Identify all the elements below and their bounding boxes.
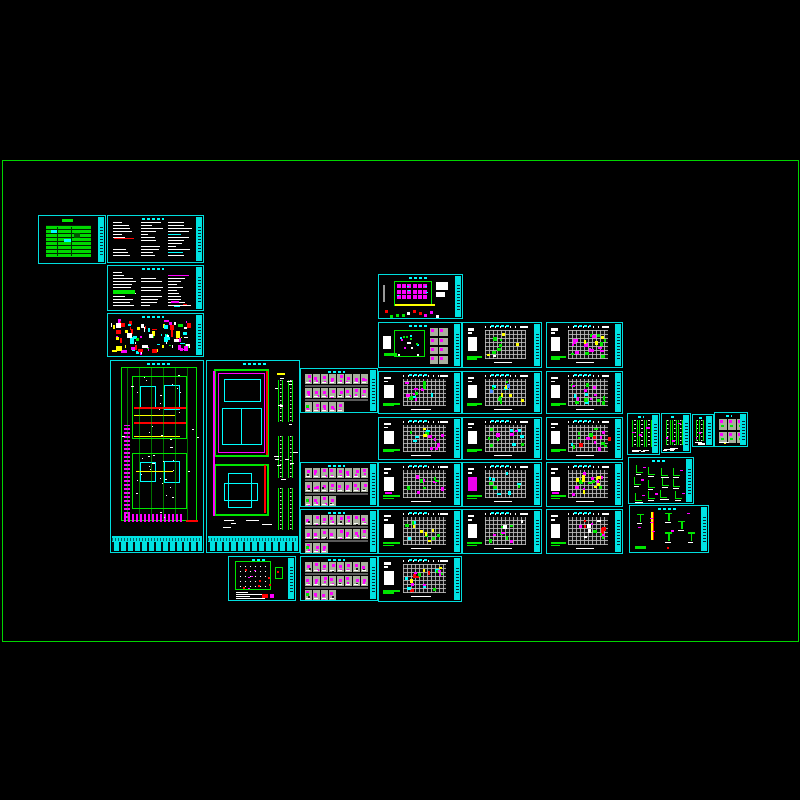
drawing-speck <box>136 338 138 341</box>
sheet-title-marks <box>142 218 164 220</box>
note-bar <box>384 423 391 425</box>
drawing-speck <box>116 330 122 334</box>
sheet-title-marks <box>328 371 345 373</box>
sheet-framing-plan-s2[interactable] <box>546 371 623 414</box>
note-text-line <box>141 302 157 303</box>
sheet-title-marks <box>671 416 676 418</box>
sheet-title-marks <box>726 415 732 417</box>
cell-rebar-mark <box>363 469 366 472</box>
sheet-title-marks <box>243 363 266 365</box>
detail-cell <box>361 529 368 539</box>
detail-cell <box>337 374 344 384</box>
title-block-framing-plan-m6 <box>454 511 460 552</box>
cover-table <box>46 225 91 258</box>
cell-rebar-mark <box>355 378 358 381</box>
cell-label <box>330 382 334 383</box>
cell-rebar-mark <box>322 594 325 597</box>
drawing-speck <box>397 295 399 296</box>
cell-rebar-mark <box>440 348 443 351</box>
dim-mark <box>131 386 134 387</box>
detail-glyph <box>660 490 667 498</box>
stair-ladder <box>632 420 638 447</box>
side-detail <box>275 567 283 578</box>
drawing-speck <box>184 327 188 329</box>
title-block-beam-details-d <box>370 558 376 599</box>
note-text-line <box>168 281 181 282</box>
magenta-dash <box>672 440 675 442</box>
plan-accent <box>423 428 426 430</box>
sheet-framing-plan-m6[interactable] <box>378 509 462 554</box>
magenta-dash <box>680 470 683 472</box>
cell-rebar-mark <box>440 357 443 360</box>
note-text-line <box>168 234 181 235</box>
detail-cell <box>329 482 336 492</box>
detail-cell <box>353 576 360 586</box>
plan-accent <box>416 475 419 479</box>
unit-outline-crenellated <box>224 379 261 402</box>
cell-label <box>306 537 310 538</box>
plan-accent <box>490 444 492 447</box>
plan-accent <box>501 393 503 397</box>
plan-accent <box>415 392 418 395</box>
detail-cell <box>353 388 360 398</box>
cover-title-bar <box>62 219 73 222</box>
sheet-framing-plan-m7[interactable] <box>378 556 462 602</box>
bottom-detail <box>424 314 427 317</box>
plan-accent <box>492 478 495 480</box>
sheet-content-beam-details-c <box>302 511 371 554</box>
drawing-speck <box>149 334 154 338</box>
plan-accent <box>497 348 500 351</box>
plan-accent <box>593 436 596 439</box>
note-text-line <box>141 240 156 241</box>
magenta-dash <box>632 432 635 434</box>
cell-label <box>338 584 342 585</box>
note-bar <box>602 513 609 515</box>
title-block-joint-details <box>740 414 746 445</box>
note-block <box>383 336 391 348</box>
drawing-speck <box>125 330 128 333</box>
tee-detail <box>640 514 642 522</box>
drawing-speck <box>169 345 171 346</box>
detail-cell <box>353 529 360 539</box>
cell-label <box>322 598 326 599</box>
sheet-plan-with-detail-cells[interactable] <box>378 322 462 368</box>
dim-text <box>293 452 298 453</box>
plan-accent <box>594 394 598 396</box>
cell-label <box>322 504 326 505</box>
detail-cell <box>337 468 344 478</box>
sheet-content-general-details-sheet <box>109 315 197 357</box>
detail-cell <box>305 529 312 539</box>
detail-cell <box>337 562 344 572</box>
detail-red <box>262 594 268 597</box>
sheet-misc-small-details[interactable] <box>692 414 714 447</box>
detail-cell <box>728 432 736 443</box>
sheet-section-details[interactable] <box>628 457 694 504</box>
plan-accent <box>439 567 441 569</box>
sheet-framing-plan-r2[interactable] <box>462 371 542 414</box>
title-block-plan-with-detail-cells <box>454 324 460 366</box>
cell-rebar-mark <box>323 469 326 472</box>
detail-cell <box>361 515 368 525</box>
cell-label <box>322 476 326 477</box>
title-block-framing-plan-r3 <box>534 419 540 458</box>
title-block-framing-plan-r2 <box>534 373 540 412</box>
column-dot-grid <box>238 564 269 586</box>
sheet-content-framing-plan-s5 <box>548 511 616 554</box>
note-bar <box>551 381 555 383</box>
sheet-notes-sheet-2[interactable] <box>107 265 204 311</box>
drawing-speck <box>174 322 176 326</box>
sheet-framing-plan-r3[interactable] <box>462 417 542 460</box>
plan-accent <box>582 475 585 478</box>
detail-glyph <box>673 468 680 476</box>
plan-accent <box>489 477 491 480</box>
title-block-misc-small-details <box>706 416 712 445</box>
note-line <box>236 598 265 599</box>
note-text-line <box>141 299 158 300</box>
dim-mark <box>165 479 168 480</box>
sheet-foundation-grid-plan[interactable] <box>228 556 296 601</box>
sheet-content-framing-plan-r5 <box>464 511 535 554</box>
drawing-speck <box>178 345 181 350</box>
cell-rebar-mark <box>363 390 366 393</box>
plan-accent <box>499 344 503 347</box>
drawing-speck <box>408 290 410 291</box>
note-block <box>551 524 560 538</box>
plan-accent <box>576 478 579 481</box>
cell-rebar-mark <box>346 577 349 580</box>
drawing-speck <box>407 286 409 287</box>
cell-rebar-mark <box>306 579 309 582</box>
title-block-framing-plan-m3 <box>454 373 460 412</box>
column-dot-red <box>268 577 270 579</box>
tee-detail <box>668 513 670 521</box>
cell-label <box>306 523 310 524</box>
cell-label <box>306 551 310 552</box>
drawing-speck <box>426 292 428 293</box>
plan-accent <box>586 437 590 440</box>
cell-label <box>330 523 334 524</box>
drawing-speck <box>248 588 250 589</box>
dim-mark <box>159 409 160 410</box>
drawing-speck <box>180 392 181 393</box>
title-block-floor-plan-a <box>112 536 202 551</box>
note-text-line <box>113 231 131 232</box>
cell-rebar-mark <box>431 357 434 360</box>
cell-rebar-mark <box>346 390 349 393</box>
cad-canvas[interactable] <box>0 0 800 800</box>
detail-cell <box>329 562 336 572</box>
sheet-stair-details-1[interactable] <box>627 413 660 455</box>
drawing-speck <box>116 337 119 339</box>
plan-accent <box>510 540 513 543</box>
drawing-speck <box>141 474 142 475</box>
dim-mark <box>172 497 175 498</box>
detail-cell <box>329 402 336 412</box>
plan-accent <box>414 388 418 390</box>
cell-rebar-mark <box>307 470 310 473</box>
plan-accent <box>520 435 524 439</box>
label-text <box>670 448 677 449</box>
sheet-content-framing-plan-s3 <box>548 419 616 460</box>
drawing-speck <box>277 571 279 573</box>
dim-text <box>576 455 594 456</box>
title-block-floor-plan-b <box>208 536 298 551</box>
green-mark <box>306 405 309 408</box>
plan-accent <box>572 493 575 496</box>
pile-cap <box>413 290 417 294</box>
drawing-speck <box>148 328 150 332</box>
dim-mark <box>178 375 180 376</box>
detail-cell <box>305 468 312 478</box>
cell-rebar-mark <box>363 530 366 533</box>
drawing-speck <box>146 380 147 381</box>
plan-accent <box>602 431 605 434</box>
detail-cell <box>305 576 312 586</box>
plan-accent <box>506 472 508 474</box>
note-bar <box>384 515 391 517</box>
drawing-speck <box>116 346 122 350</box>
note-bar <box>521 421 528 423</box>
scale-bar <box>383 451 394 452</box>
cell-rebar-mark <box>431 339 434 342</box>
plan-accent <box>603 396 605 400</box>
magenta-dash <box>643 467 646 469</box>
dim-mark <box>160 395 162 396</box>
sheet-notes-sheet-1[interactable] <box>107 215 204 263</box>
plan-accent <box>578 437 580 439</box>
sheet-framing-plan-r4[interactable] <box>462 462 542 507</box>
plan-accent <box>518 429 522 432</box>
cell-rebar-mark <box>324 577 327 580</box>
detail-cell <box>353 515 360 525</box>
accent-extra <box>183 304 187 306</box>
drawing-speck <box>161 334 162 336</box>
cell-label <box>306 382 310 383</box>
note-text-line <box>113 281 136 282</box>
sheet-stair-details-2[interactable] <box>661 413 691 453</box>
label-text <box>719 442 729 443</box>
drawing-speck <box>162 345 164 348</box>
column-bar-red <box>653 512 654 541</box>
note-text-line <box>168 255 184 256</box>
roof-panel <box>214 369 269 457</box>
cell-rebar-mark <box>315 563 318 566</box>
plan-accent <box>582 478 585 482</box>
cell-label <box>362 382 366 383</box>
note-text-line <box>168 249 190 250</box>
cell-label <box>362 570 366 571</box>
detail-cell <box>353 562 360 572</box>
note-block <box>468 431 477 444</box>
cell-label <box>362 584 366 585</box>
magenta-dash <box>650 522 653 524</box>
grid-line <box>139 367 140 521</box>
sheet-content-beam-details-d <box>302 558 371 601</box>
note-text-line <box>113 275 124 276</box>
magenta-dash <box>687 513 690 515</box>
note-bar <box>440 421 448 423</box>
plan-accent <box>497 493 500 495</box>
label-text <box>632 451 639 452</box>
title-block-beam-details-a <box>370 370 376 411</box>
grid-line <box>187 367 188 521</box>
sheet-framing-plan-r5[interactable] <box>462 509 542 554</box>
plan-accent <box>585 352 589 355</box>
plan-accent <box>405 524 409 527</box>
plan-accent <box>518 485 520 488</box>
sheet-column-details[interactable] <box>629 505 709 553</box>
detail-cell <box>313 562 320 572</box>
detail-cell <box>353 374 360 384</box>
sheet-content-framing-plan-r4 <box>464 464 535 507</box>
sheet-framing-plan-r1[interactable] <box>462 322 542 368</box>
unit-outline <box>140 386 157 408</box>
drawing-speck <box>152 329 157 330</box>
label-text <box>678 530 684 531</box>
cell-label <box>346 523 350 524</box>
detail-cell <box>313 515 320 525</box>
sheet-framing-plan-s5[interactable] <box>546 509 623 554</box>
sheet-framing-plan-m3[interactable] <box>378 371 462 414</box>
drawing-speck <box>178 324 183 327</box>
sheet-title-marks <box>328 559 345 561</box>
plan-accent <box>572 385 575 387</box>
drawing-speck <box>248 577 250 578</box>
plan-accent <box>441 487 444 491</box>
sheet-title-marks <box>658 508 676 510</box>
plan-accent <box>573 339 576 342</box>
sheet-floor-plan-a[interactable] <box>110 360 204 553</box>
plan-accent <box>406 394 410 397</box>
sheet-beam-details-c[interactable] <box>300 509 378 554</box>
detail-cell <box>361 468 368 478</box>
note-text-line <box>168 222 184 223</box>
sheet-floor-plan-b[interactable] <box>206 360 300 553</box>
sheet-content-framing-plan-m7 <box>380 558 455 602</box>
label-text <box>648 476 654 477</box>
plan-accent <box>510 433 514 436</box>
sheet-framing-plan-m4[interactable] <box>378 417 462 460</box>
dim-text <box>275 388 278 389</box>
sheet-cover-sheet[interactable] <box>38 215 106 264</box>
detail-glyph <box>661 468 668 476</box>
dim-text <box>274 456 279 457</box>
sheet-content-beam-details-a <box>302 370 371 413</box>
title-block-framing-plan-m7 <box>454 558 460 600</box>
note-text-line <box>113 225 129 226</box>
dim-text <box>290 463 294 464</box>
column-dot-red <box>259 580 261 582</box>
sheet-beam-details-a[interactable] <box>300 368 378 413</box>
drawing-speck <box>400 337 402 339</box>
dim-mark <box>170 439 172 440</box>
label-text <box>660 499 669 500</box>
sheet-general-details-sheet[interactable] <box>107 313 204 357</box>
plan-accent <box>597 483 600 485</box>
note-text-line <box>141 305 150 306</box>
cell-label <box>354 523 358 524</box>
drawing-speck <box>113 325 115 329</box>
plan-accent <box>601 355 605 358</box>
cell-label <box>322 537 326 538</box>
title-block-framing-plan-m4 <box>454 419 460 458</box>
note-text-line <box>141 287 163 288</box>
label-text <box>648 489 654 490</box>
cell-label <box>314 396 318 397</box>
cell-rebar-mark <box>362 518 365 521</box>
note-block <box>384 571 394 585</box>
note-bar <box>384 472 389 474</box>
cell-green-mark <box>730 438 733 440</box>
cell-rebar-mark <box>314 533 317 536</box>
beam-line-yellow <box>136 471 173 473</box>
cell-label <box>322 523 326 524</box>
detail-glyph <box>648 480 655 488</box>
plan-accent <box>510 525 514 527</box>
green-mark <box>306 499 309 502</box>
detail-cell <box>321 515 328 525</box>
cell-label <box>330 396 334 397</box>
note-text-line <box>141 225 152 226</box>
sheet-framing-plan-s3[interactable] <box>546 417 623 460</box>
cell-label <box>354 584 358 585</box>
note-bar <box>440 466 448 468</box>
plan-accent <box>573 445 575 449</box>
note-bar <box>551 519 555 521</box>
sheet-framing-plan-s4[interactable] <box>546 462 623 507</box>
sheet-beam-details-b[interactable] <box>300 462 378 507</box>
note-bar <box>440 560 448 562</box>
plan-accent <box>502 333 505 336</box>
sheet-pile-layout-plan[interactable] <box>378 274 463 319</box>
note-line <box>236 594 262 595</box>
cell-rebar-mark <box>332 390 335 393</box>
sheet-joint-details[interactable] <box>714 412 748 447</box>
dim-text <box>277 465 281 466</box>
drawing-speck <box>410 338 412 340</box>
cell-label <box>322 410 326 411</box>
drawing-speck <box>406 336 408 338</box>
dim-text <box>494 455 513 456</box>
edge-line-magenta <box>213 371 215 516</box>
detail-cell <box>321 496 328 506</box>
beam-line-red <box>186 520 199 522</box>
sheet-content-cover-sheet <box>40 217 99 264</box>
cell-rebar-mark <box>316 546 319 549</box>
sheet-beam-details-d[interactable] <box>300 556 378 601</box>
sheet-title-marks <box>328 512 345 514</box>
plan-accent <box>584 520 586 523</box>
drawing-speck <box>135 342 136 344</box>
cell-label <box>338 523 342 524</box>
label-text <box>637 523 643 524</box>
note-text-line <box>113 299 133 300</box>
sheet-framing-plan-s1[interactable] <box>546 322 623 368</box>
cell-rebar-mark <box>355 516 358 519</box>
note-block <box>436 292 445 296</box>
cell-label <box>322 570 326 571</box>
note-block <box>384 385 394 398</box>
detail-cell <box>305 482 312 492</box>
cell-label <box>346 490 350 491</box>
note-line <box>236 596 250 597</box>
drawing-speck <box>128 324 131 326</box>
sheet-framing-plan-m5[interactable] <box>378 462 462 507</box>
scale-bar <box>551 405 561 406</box>
